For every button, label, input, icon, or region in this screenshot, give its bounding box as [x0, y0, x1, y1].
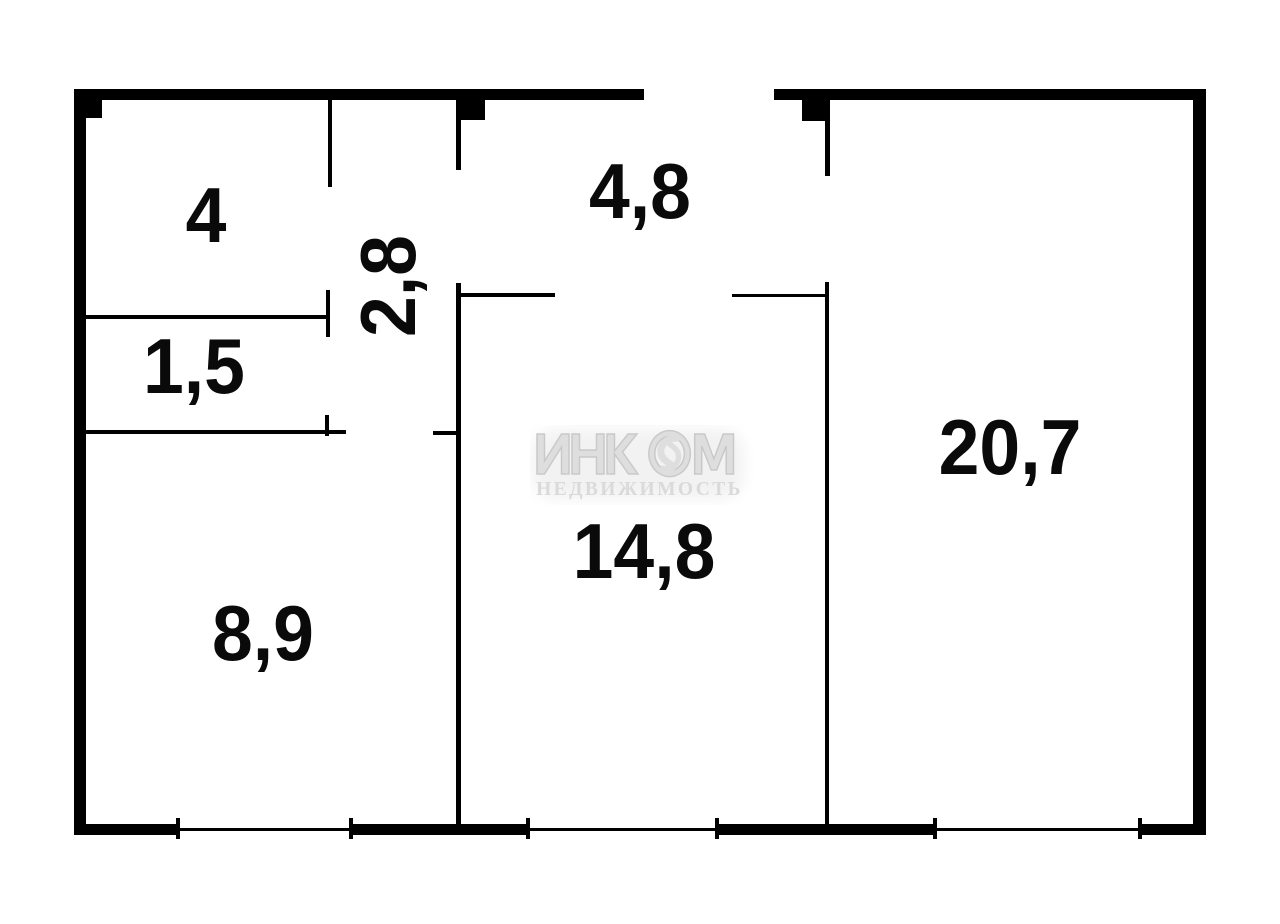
svg-text:НЕДВИЖИМОСТЬ: НЕДВИЖИМОСТЬ — [536, 479, 743, 500]
